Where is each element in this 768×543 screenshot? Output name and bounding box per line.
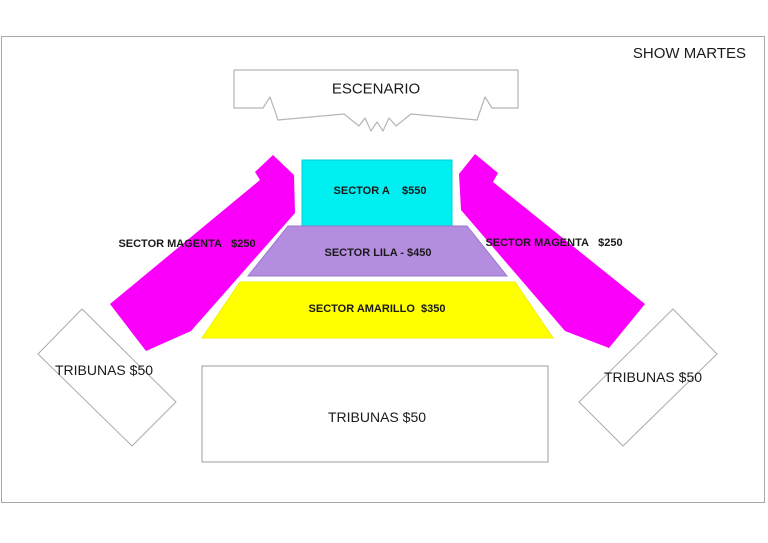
tribunas-bottom-label: TRIBUNAS $50 [328,409,426,425]
sector-amarillo-label: SECTOR AMARILLO $350 [309,303,446,315]
tribunas-right-label: TRIBUNAS $50 [604,369,702,385]
show-title: SHOW MARTES [633,45,746,62]
sector-magenta-left-label: SECTOR MAGENTA $250 [118,238,255,250]
seating-map: SHOW MARTES ESCENARIO SECTOR A $550 SECT… [0,0,768,543]
stage-label: ESCENARIO [332,81,420,98]
sector-lila-label: SECTOR LILA - $450 [325,247,432,259]
sector-a-label: SECTOR A $550 [334,185,427,197]
sector-magenta-right-label: SECTOR MAGENTA $250 [485,237,622,249]
tribunas-left-label: TRIBUNAS $50 [55,362,153,378]
stage-outline [234,70,518,131]
